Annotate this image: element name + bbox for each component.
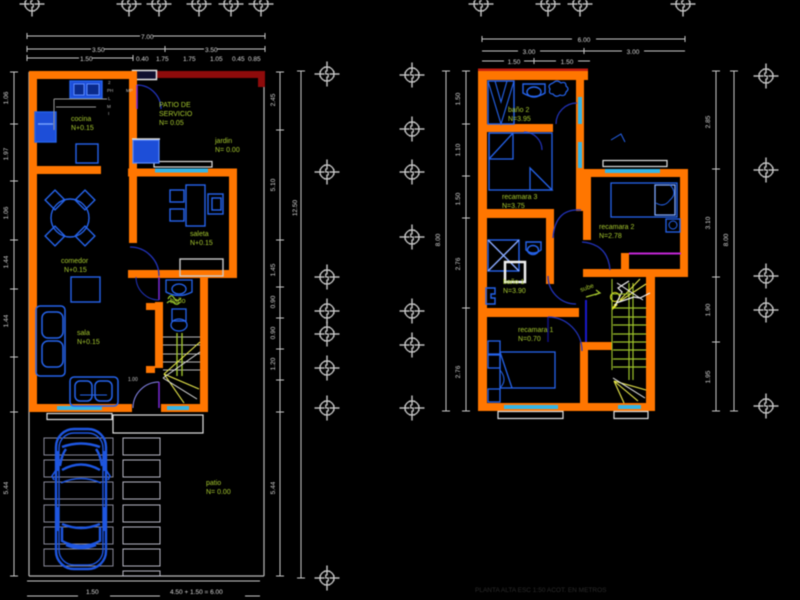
svg-text:jardin: jardin <box>214 138 232 145</box>
svg-text:1.00: 1.00 <box>128 377 138 383</box>
svg-text:3.10: 3.10 <box>705 216 712 229</box>
svg-text:N+0.15: N+0.15 <box>64 267 87 274</box>
svg-text:0.90: 0.90 <box>270 326 277 339</box>
svg-text:1.50: 1.50 <box>86 589 99 596</box>
svg-text:N=3.95: N=3.95 <box>508 116 531 123</box>
svg-text:N= 0.00: N= 0.00 <box>215 147 240 154</box>
svg-text:baño: baño <box>170 298 186 305</box>
svg-text:1.05: 1.05 <box>210 56 223 63</box>
svg-text:3.50: 3.50 <box>92 47 105 54</box>
svg-text:1.50: 1.50 <box>561 59 574 66</box>
svg-text:1.75: 1.75 <box>183 56 196 63</box>
svg-text:2.76: 2.76 <box>455 257 462 270</box>
svg-text:N= 0.05: N= 0.05 <box>159 120 184 127</box>
svg-text:2.76: 2.76 <box>455 365 462 378</box>
svg-text:7.00: 7.00 <box>141 34 154 41</box>
svg-text:recamara 3: recamara 3 <box>502 194 538 201</box>
svg-text:0.90: 0.90 <box>270 295 277 308</box>
svg-text:1.75: 1.75 <box>156 56 169 63</box>
svg-text:1.44: 1.44 <box>3 255 10 268</box>
svg-text:recamara 2: recamara 2 <box>599 224 635 231</box>
svg-text:8.00: 8.00 <box>723 233 730 246</box>
svg-text:cocina: cocina <box>71 116 91 123</box>
svg-text:recamara 1: recamara 1 <box>518 327 554 334</box>
svg-text:1.06: 1.06 <box>3 206 10 219</box>
svg-text:2.85: 2.85 <box>705 115 712 128</box>
svg-text:0.40: 0.40 <box>136 56 149 63</box>
svg-text:I: I <box>108 111 109 116</box>
svg-text:2.45: 2.45 <box>270 93 277 106</box>
svg-text:PLANTA ALTA ESC 1:50 ACOT. E: PLANTA ALTA ESC 1:50 ACOT. EN METROS <box>475 587 607 594</box>
svg-text:N=3.75: N=3.75 <box>502 203 525 210</box>
svg-text:N=0.70: N=0.70 <box>518 336 541 343</box>
svg-text:0.45: 0.45 <box>232 56 245 63</box>
svg-text:1.50: 1.50 <box>455 192 462 205</box>
svg-text:sala: sala <box>77 330 90 337</box>
svg-text:PH: PH <box>107 88 113 93</box>
svg-text:1.20: 1.20 <box>270 357 277 370</box>
svg-text:N+0.15: N+0.15 <box>71 125 94 132</box>
svg-text:comedor: comedor <box>61 258 89 265</box>
svg-text:5.44: 5.44 <box>270 481 277 494</box>
svg-text:N= 0.00: N= 0.00 <box>206 489 231 496</box>
svg-text:MP: MP <box>126 88 133 93</box>
svg-text:0.85: 0.85 <box>248 56 261 63</box>
svg-text:N+0.15: N+0.15 <box>190 240 213 247</box>
svg-text:5.10: 5.10 <box>270 178 277 191</box>
svg-text:6.00: 6.00 <box>578 37 591 44</box>
svg-text:1.50: 1.50 <box>455 92 462 105</box>
svg-text:1.50: 1.50 <box>508 59 521 66</box>
svg-text:8.00: 8.00 <box>435 233 442 246</box>
svg-text:M: M <box>107 104 111 109</box>
svg-text:1.06: 1.06 <box>3 91 10 104</box>
svg-text:3.50: 3.50 <box>205 47 218 54</box>
svg-text:1.44: 1.44 <box>3 314 10 327</box>
svg-text:baño 1: baño 1 <box>503 279 525 286</box>
svg-text:3.00: 3.00 <box>523 49 536 56</box>
svg-text:baño 2: baño 2 <box>508 107 530 114</box>
svg-text:12.50: 12.50 <box>292 199 299 216</box>
svg-text:patio: patio <box>206 480 221 487</box>
svg-text:1.45: 1.45 <box>270 263 277 276</box>
svg-text:1.90: 1.90 <box>705 303 712 316</box>
svg-text:3.00: 3.00 <box>627 49 640 56</box>
svg-text:PATIO DE: PATIO DE <box>159 102 191 109</box>
svg-text:N=3.90: N=3.90 <box>503 288 526 295</box>
svg-text:1.95: 1.95 <box>705 370 712 383</box>
svg-text:5.44: 5.44 <box>3 481 10 494</box>
svg-text:1.50: 1.50 <box>80 56 93 63</box>
svg-text:1.97: 1.97 <box>3 147 10 160</box>
svg-text:saleta: saleta <box>190 231 209 238</box>
svg-text:N+0.15: N+0.15 <box>77 339 100 346</box>
svg-text:4.50 + 1.50 = 6.00: 4.50 + 1.50 = 6.00 <box>170 589 223 596</box>
svg-text:N=2.78: N=2.78 <box>599 233 622 240</box>
svg-text:1.10: 1.10 <box>455 143 462 156</box>
svg-text:SERVICIO: SERVICIO <box>159 111 193 118</box>
